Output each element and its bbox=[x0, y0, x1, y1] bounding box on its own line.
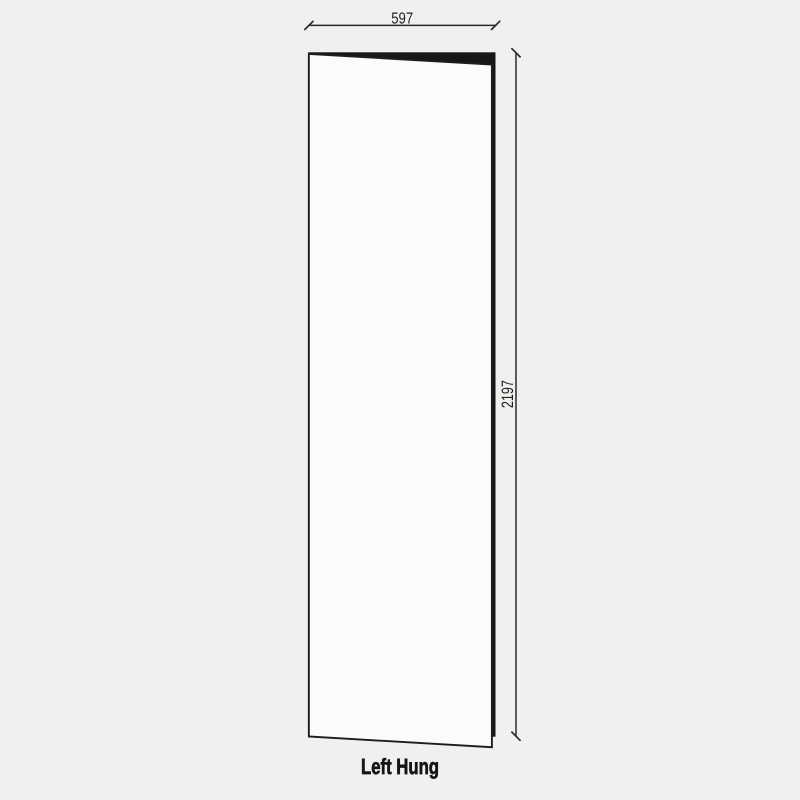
svg-text:2197: 2197 bbox=[499, 380, 517, 408]
svg-text:597: 597 bbox=[391, 10, 413, 27]
svg-text:Left Hung: Left Hung bbox=[361, 754, 439, 779]
